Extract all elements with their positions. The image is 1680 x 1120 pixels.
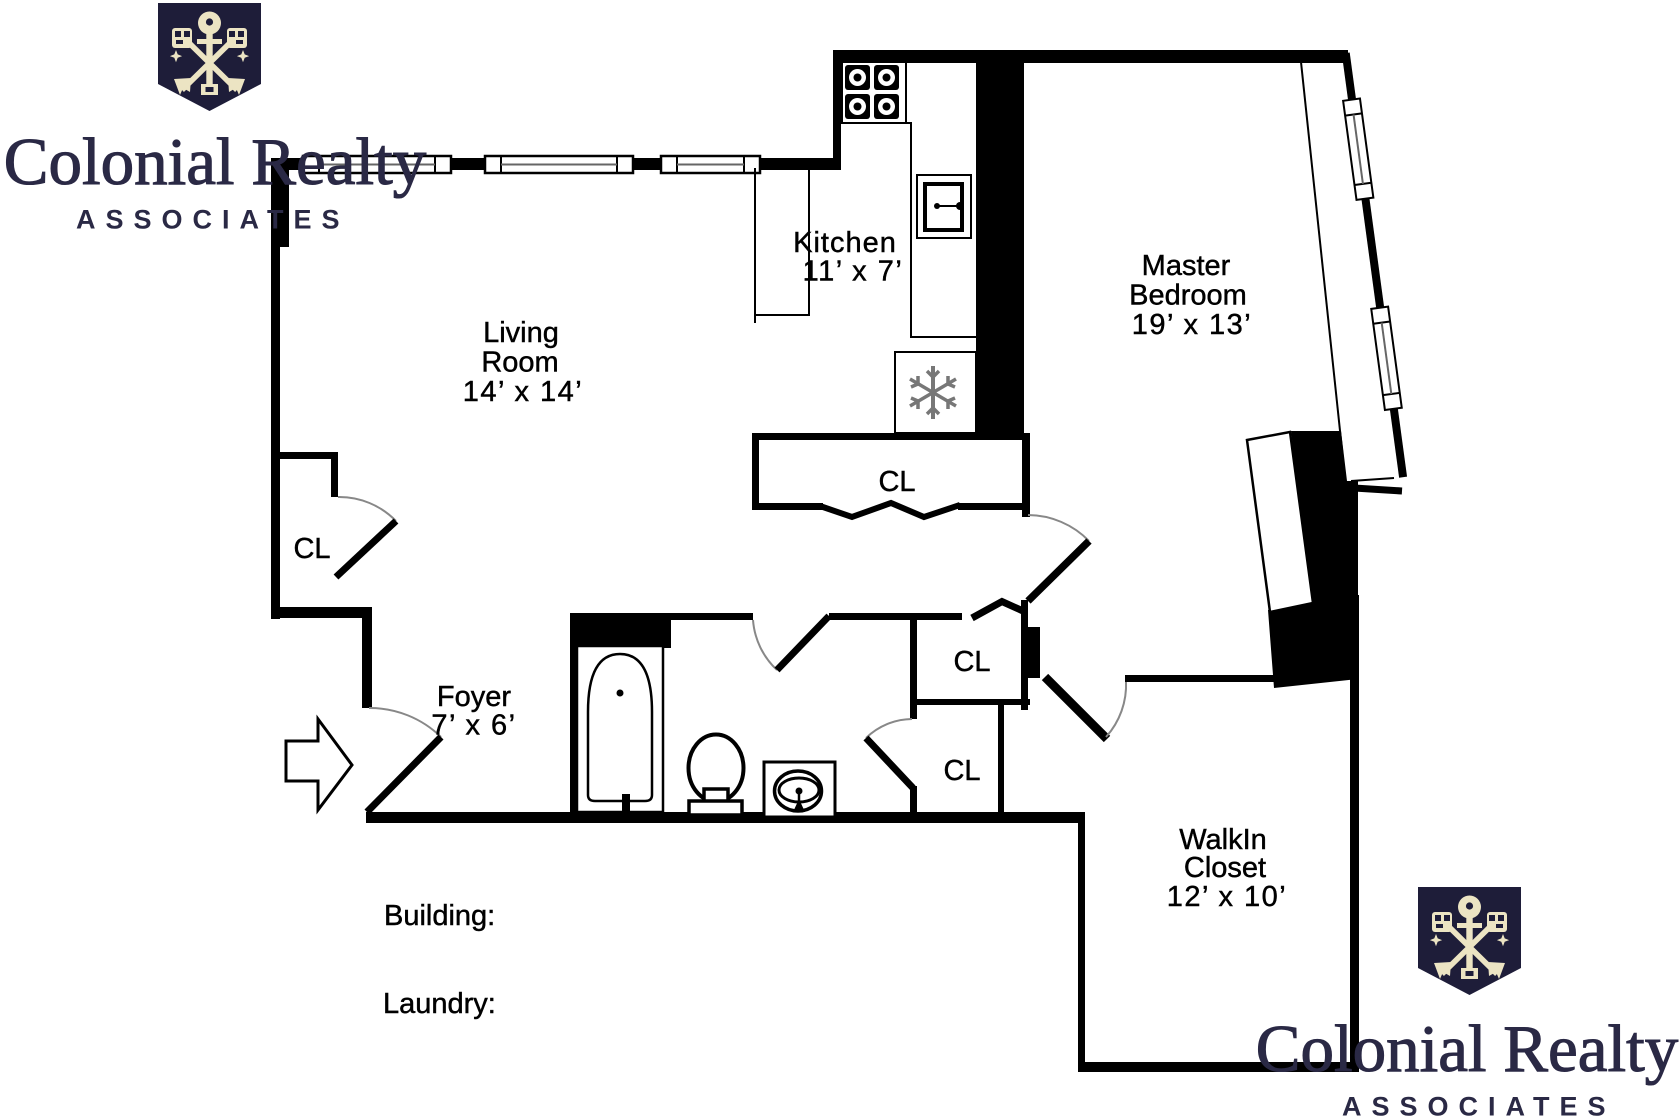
svg-text:CL: CL — [878, 466, 915, 498]
svg-text:Closet: Closet — [1184, 852, 1266, 884]
svg-text:Living: Living — [483, 317, 559, 349]
svg-text:Master: Master — [1142, 250, 1231, 282]
svg-text:CL: CL — [943, 755, 980, 787]
svg-text:Colonial Realty: Colonial Realty — [1256, 1012, 1679, 1086]
svg-text:11’ x 7’: 11’ x 7’ — [803, 256, 904, 288]
svg-text:Building:: Building: — [384, 900, 495, 932]
svg-text:Laundry:: Laundry: — [383, 988, 496, 1020]
svg-text:ASSOCIATES: ASSOCIATES — [76, 205, 350, 235]
svg-text:Bedroom: Bedroom — [1129, 280, 1247, 312]
svg-text:Colonial Realty: Colonial Realty — [4, 125, 427, 199]
svg-text:Room: Room — [481, 347, 558, 379]
svg-text:CL: CL — [953, 646, 990, 678]
svg-text:CL: CL — [293, 533, 330, 565]
svg-text:ASSOCIATES: ASSOCIATES — [1342, 1092, 1616, 1120]
svg-text:Foyer: Foyer — [437, 681, 511, 713]
svg-text:7’ x 6’: 7’ x 6’ — [431, 710, 516, 742]
svg-text:14’ x 14’: 14’ x 14’ — [463, 376, 583, 408]
svg-text:19’ x 13’: 19’ x 13’ — [1132, 309, 1252, 341]
svg-text:12’ x 10’: 12’ x 10’ — [1167, 881, 1287, 913]
svg-text:Kitchen: Kitchen — [793, 227, 897, 259]
